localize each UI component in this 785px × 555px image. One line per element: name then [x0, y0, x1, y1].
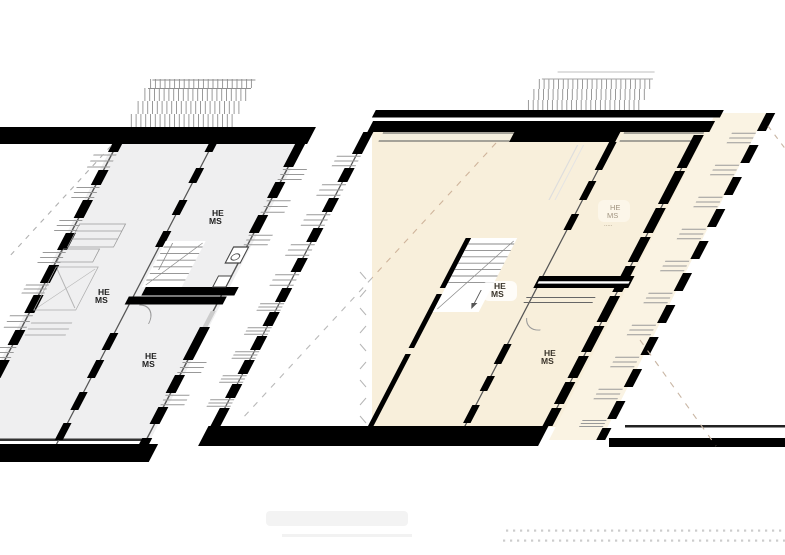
svg-text:MS: MS [95, 295, 108, 305]
svg-text:.....: ..... [604, 222, 613, 228]
svg-text:MS: MS [491, 289, 504, 299]
svg-text:MS: MS [607, 211, 618, 220]
svg-text:MS: MS [142, 359, 155, 369]
svg-text:MS: MS [209, 216, 222, 226]
svg-text:MS: MS [541, 356, 554, 366]
